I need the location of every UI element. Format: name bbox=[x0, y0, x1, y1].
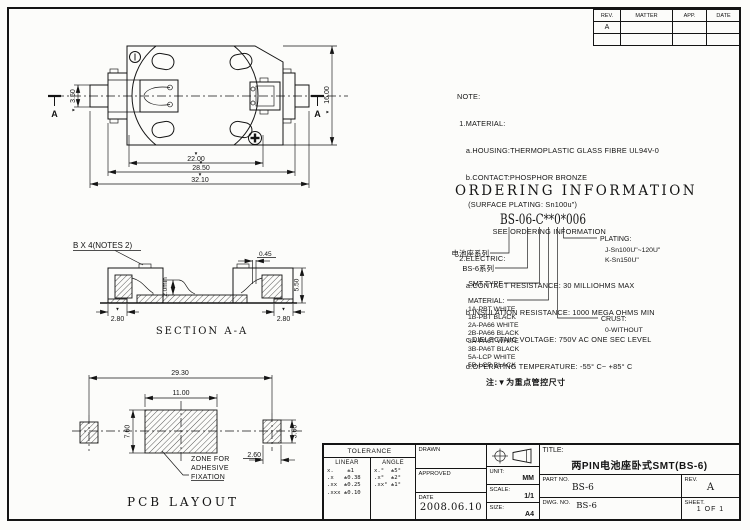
svg-text:5B-LCP BLACK: 5B-LCP BLACK bbox=[468, 362, 516, 369]
center-contact-strip bbox=[137, 295, 247, 303]
adhesive-pad-left bbox=[139, 264, 151, 268]
revision-row2 bbox=[621, 34, 673, 45]
foot-right bbox=[274, 299, 293, 303]
unit-value: MM bbox=[487, 475, 539, 482]
crust-option: 0-WITHOUT bbox=[605, 327, 643, 334]
svg-text:2.80: 2.80 bbox=[111, 316, 125, 323]
dim-2-80-right: ▼ 2.80 bbox=[262, 304, 305, 323]
sheet-value: 1 OF 1 bbox=[682, 506, 739, 513]
key-dim-marker: ▼ bbox=[281, 307, 285, 312]
ordering-heading: ORDERING INFORMATION bbox=[455, 183, 697, 199]
slot-top-left bbox=[151, 52, 175, 71]
linear-title: LINEAR bbox=[324, 459, 370, 468]
svg-text:29.30: 29.30 bbox=[171, 370, 189, 377]
dim-28-50: 28.50 ▼ bbox=[108, 123, 295, 176]
svg-text:3.50: 3.50 bbox=[70, 89, 77, 103]
note-line: a.HOUSING:THERMOPLASTIC GLASS FIBRE UL94… bbox=[457, 146, 659, 155]
rev-col-header: REV. bbox=[594, 10, 621, 22]
svg-text:5A-LCP WHITE: 5A-LCP WHITE bbox=[468, 354, 516, 361]
svg-text:32.10: 32.10 bbox=[191, 177, 209, 184]
key-dimension-footnote: 注:▼为重点管控尺寸 bbox=[486, 377, 566, 388]
material-options: 1A-PBT WHITE 1B-PBT BLACK 2A-PA66 WHITE … bbox=[468, 306, 520, 369]
adhesive-pad-right bbox=[237, 264, 249, 268]
section-view-drawing: B X 4(NOTES 2) 2.0min 0.45 5.50 ▼ 2.80 ▼… bbox=[55, 228, 330, 346]
key-dim-marker: ▼ bbox=[71, 108, 76, 112]
dim-3-50: 3.50 ▼ bbox=[70, 85, 90, 112]
slot-bottom-left bbox=[151, 120, 175, 139]
svg-text:K-Sn150U": K-Sn150U" bbox=[605, 257, 639, 264]
dim-2-0min: 2.0min bbox=[162, 277, 195, 297]
part-no-value: BS-6 bbox=[572, 483, 681, 493]
angle-tolerances: x.° ±5° .x° ±2° .xx° ±1° bbox=[371, 468, 415, 490]
pcb-geometry bbox=[72, 401, 304, 463]
tolerance-title: TOLERANCE bbox=[324, 445, 415, 458]
note-line: b.CONTACT:PHOSPHOR BRONZE bbox=[457, 173, 659, 182]
svg-text:11.00: 11.00 bbox=[173, 390, 190, 397]
part-number-code: BS-06-C**0*006 bbox=[500, 212, 586, 228]
crust-label: CRUST: bbox=[601, 316, 626, 323]
revision-row-date bbox=[707, 22, 740, 34]
dim-5-50: 5.50 bbox=[293, 268, 306, 303]
revision-row-rev: A bbox=[594, 22, 621, 34]
drawing-sheet: { "marker": "▼", "revision_table": { "co… bbox=[0, 0, 750, 530]
projection-symbol-icon bbox=[491, 447, 535, 465]
tolerance-box: TOLERANCE LINEAR x. ±1 .x ±0.38 .xx ±0.2… bbox=[324, 445, 416, 519]
dim-22-00: 22.00 ▼ bbox=[129, 135, 263, 167]
title-block: TOLERANCE LINEAR x. ±1 .x ±0.38 .xx ±0.2… bbox=[322, 443, 741, 521]
note-line: NOTE: bbox=[457, 92, 659, 101]
svg-text:ZONE FOR: ZONE FOR bbox=[191, 456, 230, 463]
section-label-a-right: A bbox=[314, 109, 321, 119]
revision-row-matter bbox=[621, 22, 673, 34]
svg-text:ADHESIVE: ADHESIVE bbox=[191, 465, 229, 472]
pcb-pad-right bbox=[263, 420, 281, 443]
date-value: 2008.06.10 bbox=[416, 502, 486, 513]
dim-2-60: 2.60 bbox=[243, 445, 295, 464]
key-dim-marker: ▼ bbox=[325, 110, 330, 114]
date-col-header: DATE bbox=[707, 10, 740, 22]
ordering-diagram: BS-06-C**0*006 电池座系列 BS-6系列 SMT TYPE MAT… bbox=[438, 205, 738, 373]
svg-text:3B-PA6T BLACK: 3B-PA6T BLACK bbox=[468, 346, 520, 353]
size-value: A4 bbox=[487, 511, 539, 518]
section-label-a-left: A bbox=[51, 109, 58, 119]
dim-32-10: 32.10 ▼ bbox=[90, 111, 309, 188]
size-label: SIZE: bbox=[487, 503, 539, 511]
svg-text:1A-PBT WHITE: 1A-PBT WHITE bbox=[468, 306, 516, 313]
slot-bottom-right bbox=[229, 120, 253, 139]
app-col-header: APP. bbox=[673, 10, 707, 22]
matter-col-header: MATTER bbox=[621, 10, 673, 22]
revision-row2 bbox=[673, 34, 707, 45]
svg-text:2B-PA66 BLACK: 2B-PA66 BLACK bbox=[468, 330, 519, 337]
drawn-label: DRAWN bbox=[416, 445, 486, 453]
plating-label: PLATING: bbox=[600, 236, 631, 243]
unit-label: UNIT: bbox=[487, 467, 539, 475]
part-no-label: PART NO. bbox=[540, 475, 681, 483]
rev-value: A bbox=[682, 482, 739, 493]
section-marker-right: A bbox=[311, 96, 324, 119]
minus-polarity-icon bbox=[130, 52, 141, 63]
dim-16-00: 16.00 ▼ bbox=[283, 46, 337, 145]
plus-polarity-icon bbox=[249, 132, 262, 145]
section-geometry bbox=[100, 260, 297, 303]
svg-text:B X 4(NOTES 2): B X 4(NOTES 2) bbox=[73, 241, 132, 250]
dwg-no-label: DWG. NO. bbox=[540, 498, 570, 506]
adhesive-zone bbox=[145, 410, 217, 453]
key-dim-marker: ▼ bbox=[194, 151, 198, 156]
revision-row2 bbox=[707, 34, 740, 45]
pcb-caption: PCB LAYOUT bbox=[127, 495, 239, 509]
key-dim-marker: ▼ bbox=[199, 160, 203, 165]
pcb-layout-drawing: 29.30 11.00 7.60 3.60 2.60 ZONE FOR ADHE… bbox=[50, 365, 335, 515]
callout-b-x4: B X 4(NOTES 2) bbox=[73, 241, 143, 265]
section-caption: SECTION A-A bbox=[156, 326, 248, 337]
svg-text:5.50: 5.50 bbox=[294, 278, 301, 291]
unit-column: UNIT: MM SCALE: 1/1 SIZE: A4 bbox=[487, 445, 540, 519]
svg-text:3.60: 3.60 bbox=[292, 425, 299, 439]
dim-7-60: 7.60 bbox=[125, 410, 146, 453]
key-dim-marker: ▼ bbox=[115, 307, 119, 312]
ordering-leader-lines bbox=[490, 227, 598, 318]
svg-text:7.60: 7.60 bbox=[125, 425, 132, 439]
slot-top-right bbox=[229, 52, 253, 71]
svg-text:0.45: 0.45 bbox=[259, 251, 272, 258]
material-label: MATERIAL: bbox=[468, 298, 504, 305]
linear-tolerances: x. ±1 .x ±0.38 .xx ±0.25 .xxx ±0.10 bbox=[324, 468, 370, 497]
svg-text:28.50: 28.50 bbox=[192, 165, 210, 172]
revision-table: REV. MATTER APP. DATE A bbox=[593, 9, 741, 46]
svg-text:3A-PA6T WHITE: 3A-PA6T WHITE bbox=[468, 338, 519, 345]
section-marker-left: A bbox=[48, 96, 61, 119]
svg-text:2A-PA66 WHITE: 2A-PA66 WHITE bbox=[468, 322, 519, 329]
zone-annotation: ZONE FOR ADHESIVE FIXATION bbox=[162, 451, 230, 481]
series2-label: BS-6系列 bbox=[462, 263, 494, 273]
dim-3-60: 3.60 bbox=[281, 420, 299, 443]
svg-text:J-Sn100U"~120U": J-Sn100U"~120U" bbox=[605, 247, 661, 254]
svg-text:2.80: 2.80 bbox=[277, 316, 291, 323]
smt-type-label: SMT TYPE bbox=[468, 281, 503, 288]
foot-left bbox=[108, 299, 127, 303]
svg-text:2.60: 2.60 bbox=[247, 452, 261, 459]
drawing-title: 两PIN电池座卧式SMT(BS-6) bbox=[540, 457, 739, 472]
date-label: DATE bbox=[416, 493, 486, 501]
holder-body bbox=[55, 33, 348, 159]
title-label: TITLE: bbox=[540, 445, 739, 454]
revision-row2 bbox=[594, 34, 621, 45]
dim-2-80-left: ▼ 2.80 bbox=[96, 304, 139, 323]
sheet-label: SHEET. bbox=[682, 498, 739, 506]
series-label: 电池座系列 bbox=[452, 248, 490, 258]
svg-text:2.0min: 2.0min bbox=[162, 277, 169, 297]
plating-options: J-Sn100U"~120U" K-Sn150U" bbox=[605, 247, 661, 264]
scale-value: 1/1 bbox=[487, 493, 539, 500]
pcb-pad-left bbox=[80, 422, 98, 443]
svg-text:16.00: 16.00 bbox=[324, 86, 331, 104]
dwg-no-value: BS-6 bbox=[576, 501, 597, 511]
scale-label: SCALE: bbox=[487, 485, 539, 493]
approved-label: APPROVED bbox=[416, 469, 486, 477]
key-dim-marker: ▼ bbox=[198, 172, 202, 177]
revision-row-app bbox=[673, 22, 707, 34]
angle-title: ANGLE bbox=[371, 459, 415, 468]
top-view-drawing: A A 3.50 ▼ 16.00 ▼ 22.00 ▼ 28.50 ▼ bbox=[30, 15, 365, 210]
title-column: TITLE: 两PIN电池座卧式SMT(BS-6) PART NO. BS-6 … bbox=[540, 445, 739, 519]
dim-0-45: 0.45 bbox=[238, 251, 276, 261]
signature-column: DRAWN APPROVED DATE 2008.06.10 bbox=[416, 445, 487, 519]
svg-text:1B-PBT BLACK: 1B-PBT BLACK bbox=[468, 314, 516, 321]
svg-text:FIXATION: FIXATION bbox=[191, 474, 225, 481]
note-line: 1.MATERIAL: bbox=[457, 119, 659, 128]
